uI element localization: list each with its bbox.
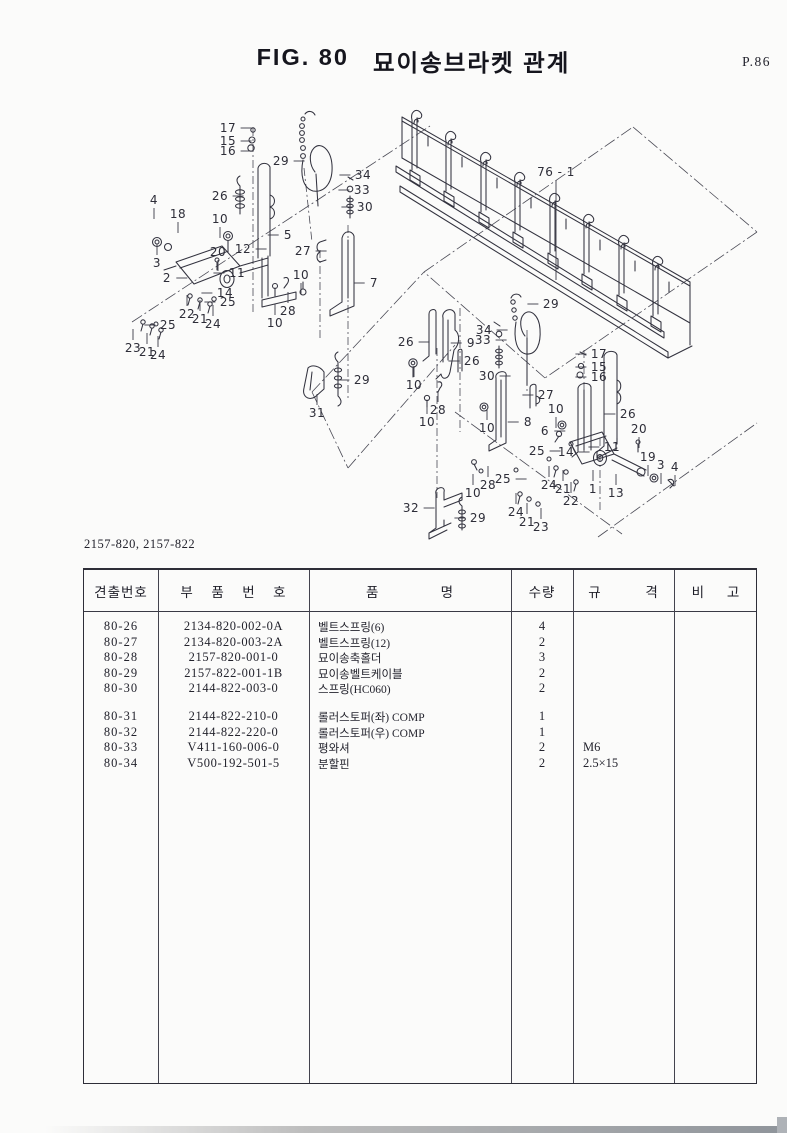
cell-no: 80-28 [84, 650, 158, 666]
cell-spec [573, 681, 674, 697]
header-part-name: 품 명 [309, 581, 511, 601]
cell-part: 2134-820-002-0A [158, 619, 309, 635]
table-row: 80-302144-822-003-0스프링(HC060)2 [84, 681, 756, 697]
cell-qty: 2 [511, 740, 573, 756]
cell-part: V500-192-501-5 [158, 756, 309, 772]
cell-no: 80-34 [84, 756, 158, 772]
left-part-sketches [141, 111, 354, 339]
right-part-sketches [547, 351, 674, 491]
header-note: 비 고 [674, 581, 758, 601]
cell-name: 벨트스프링(12) [309, 635, 511, 651]
scan-edge-artifact [45, 1126, 787, 1133]
cell-no: 80-33 [84, 740, 158, 756]
cell-note [674, 709, 758, 725]
table-row: 80-33V411-160-006-0평와셔2M6 [84, 740, 756, 756]
cell-no: 80-29 [84, 666, 158, 682]
cell-part: 2157-822-001-1B [158, 666, 309, 682]
cell-spec [573, 650, 674, 666]
cell-part: 2157-820-001-0 [158, 650, 309, 666]
scan-corner-artifact [777, 1117, 787, 1133]
table-row: 80-322144-822-220-0롤러스토퍼(우) COMP1 [84, 725, 756, 741]
cell-qty: 2 [511, 756, 573, 772]
cell-name: 평와셔 [309, 740, 511, 756]
cell-part: 2144-822-220-0 [158, 725, 309, 741]
cell-spec: M6 [573, 740, 674, 756]
table-body: 80-262134-820-002-0A벨트스프링(6)480-272134-8… [84, 612, 756, 771]
cell-qty: 2 [511, 666, 573, 682]
table-row: 80-272134-820-003-2A벨트스프링(12)2 [84, 635, 756, 651]
header-qty: 수량 [511, 581, 573, 601]
cell-note [674, 681, 758, 697]
table-row: 80-34V500-192-501-5분할핀22.5×15 [84, 756, 756, 772]
parts-table: 견출번호 부 품 번 호 품 명 수량 규 격 비 고 80-262134-82… [83, 568, 757, 1084]
table-row: 80-292157-822-001-1B묘이송벨트케이블2 [84, 666, 756, 682]
table-row: 80-262134-820-002-0A벨트스프링(6)4 [84, 619, 756, 635]
cell-note [674, 619, 758, 635]
cell-note [674, 650, 758, 666]
cell-name: 롤러스토퍼(좌) COMP [309, 709, 511, 725]
cell-qty: 1 [511, 725, 573, 741]
cell-note [674, 635, 758, 651]
cell-spec [573, 619, 674, 635]
header-part-no: 부 품 번 호 [158, 581, 309, 601]
table-row-group: 80-312144-822-210-0롤러스토퍼(좌) COMP180-3221… [84, 709, 756, 771]
cell-name: 분할핀 [309, 756, 511, 772]
cell-name: 묘이송축홀더 [309, 650, 511, 666]
catalog-page: FIG. 80 묘이송브라켓 관계 P.86 [0, 0, 787, 1133]
cell-qty: 2 [511, 635, 573, 651]
cell-no: 80-30 [84, 681, 158, 697]
cell-qty: 4 [511, 619, 573, 635]
cell-note [674, 666, 758, 682]
cell-spec [573, 635, 674, 651]
cell-spec: 2.5×15 [573, 756, 674, 772]
cell-name: 묘이송벨트케이블 [309, 666, 511, 682]
cell-part: 2144-822-210-0 [158, 709, 309, 725]
model-codes: 2157-820, 2157-822 [84, 537, 195, 552]
cell-spec [573, 709, 674, 725]
rail-assembly [396, 110, 692, 358]
cell-note [674, 740, 758, 756]
cell-no: 80-27 [84, 635, 158, 651]
cell-name: 롤러스토퍼(우) COMP [309, 725, 511, 741]
cell-part: 2134-820-003-2A [158, 635, 309, 651]
cell-qty: 1 [511, 709, 573, 725]
cell-no: 80-31 [84, 709, 158, 725]
table-row-group: 80-262134-820-002-0A벨트스프링(6)480-272134-8… [84, 619, 756, 697]
column-divider [309, 570, 310, 1083]
cell-part: 2144-822-003-0 [158, 681, 309, 697]
header-callout-no: 견출번호 [84, 581, 158, 601]
cell-qty: 3 [511, 650, 573, 666]
cell-note [674, 725, 758, 741]
cell-spec [573, 666, 674, 682]
cell-qty: 2 [511, 681, 573, 697]
cell-name: 스프링(HC060) [309, 681, 511, 697]
cell-part: V411-160-006-0 [158, 740, 309, 756]
column-divider [674, 570, 675, 1083]
exploded-diagram: 1715162926343330418103512202721114252221… [0, 0, 787, 560]
table-row: 80-312144-822-210-0롤러스토퍼(좌) COMP1 [84, 709, 756, 725]
cell-name: 벨트스프링(6) [309, 619, 511, 635]
diagram-linework [0, 0, 787, 560]
column-divider [158, 570, 159, 1083]
cell-spec [573, 725, 674, 741]
header-spec: 규 격 [573, 581, 674, 601]
table-row: 80-282157-820-001-0묘이송축홀더3 [84, 650, 756, 666]
column-divider [573, 570, 574, 1083]
cell-no: 80-26 [84, 619, 158, 635]
column-divider [511, 570, 512, 1083]
cell-no: 80-32 [84, 725, 158, 741]
cell-note [674, 756, 758, 772]
table-header-row: 견출번호 부 품 번 호 품 명 수량 규 격 비 고 [84, 570, 756, 612]
